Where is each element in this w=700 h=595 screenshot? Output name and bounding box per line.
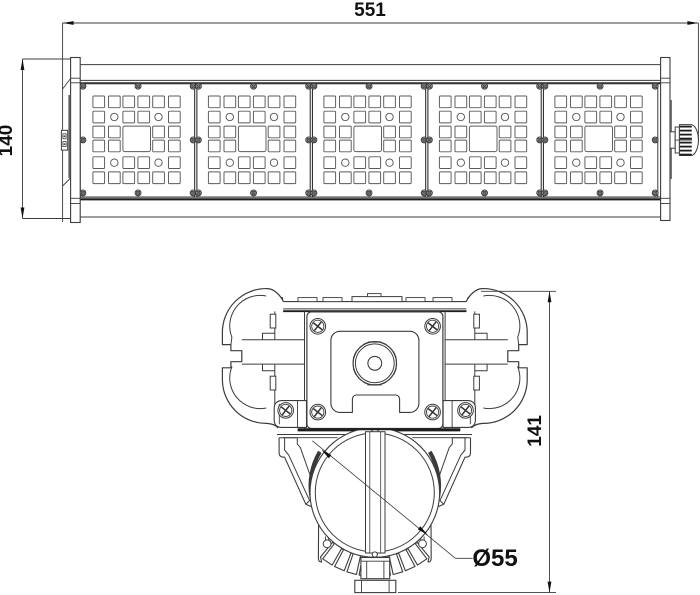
svg-text:140: 140: [0, 125, 17, 157]
svg-text:141: 141: [525, 415, 546, 447]
svg-text:Ø55: Ø55: [472, 545, 517, 572]
svg-text:551: 551: [354, 0, 386, 21]
